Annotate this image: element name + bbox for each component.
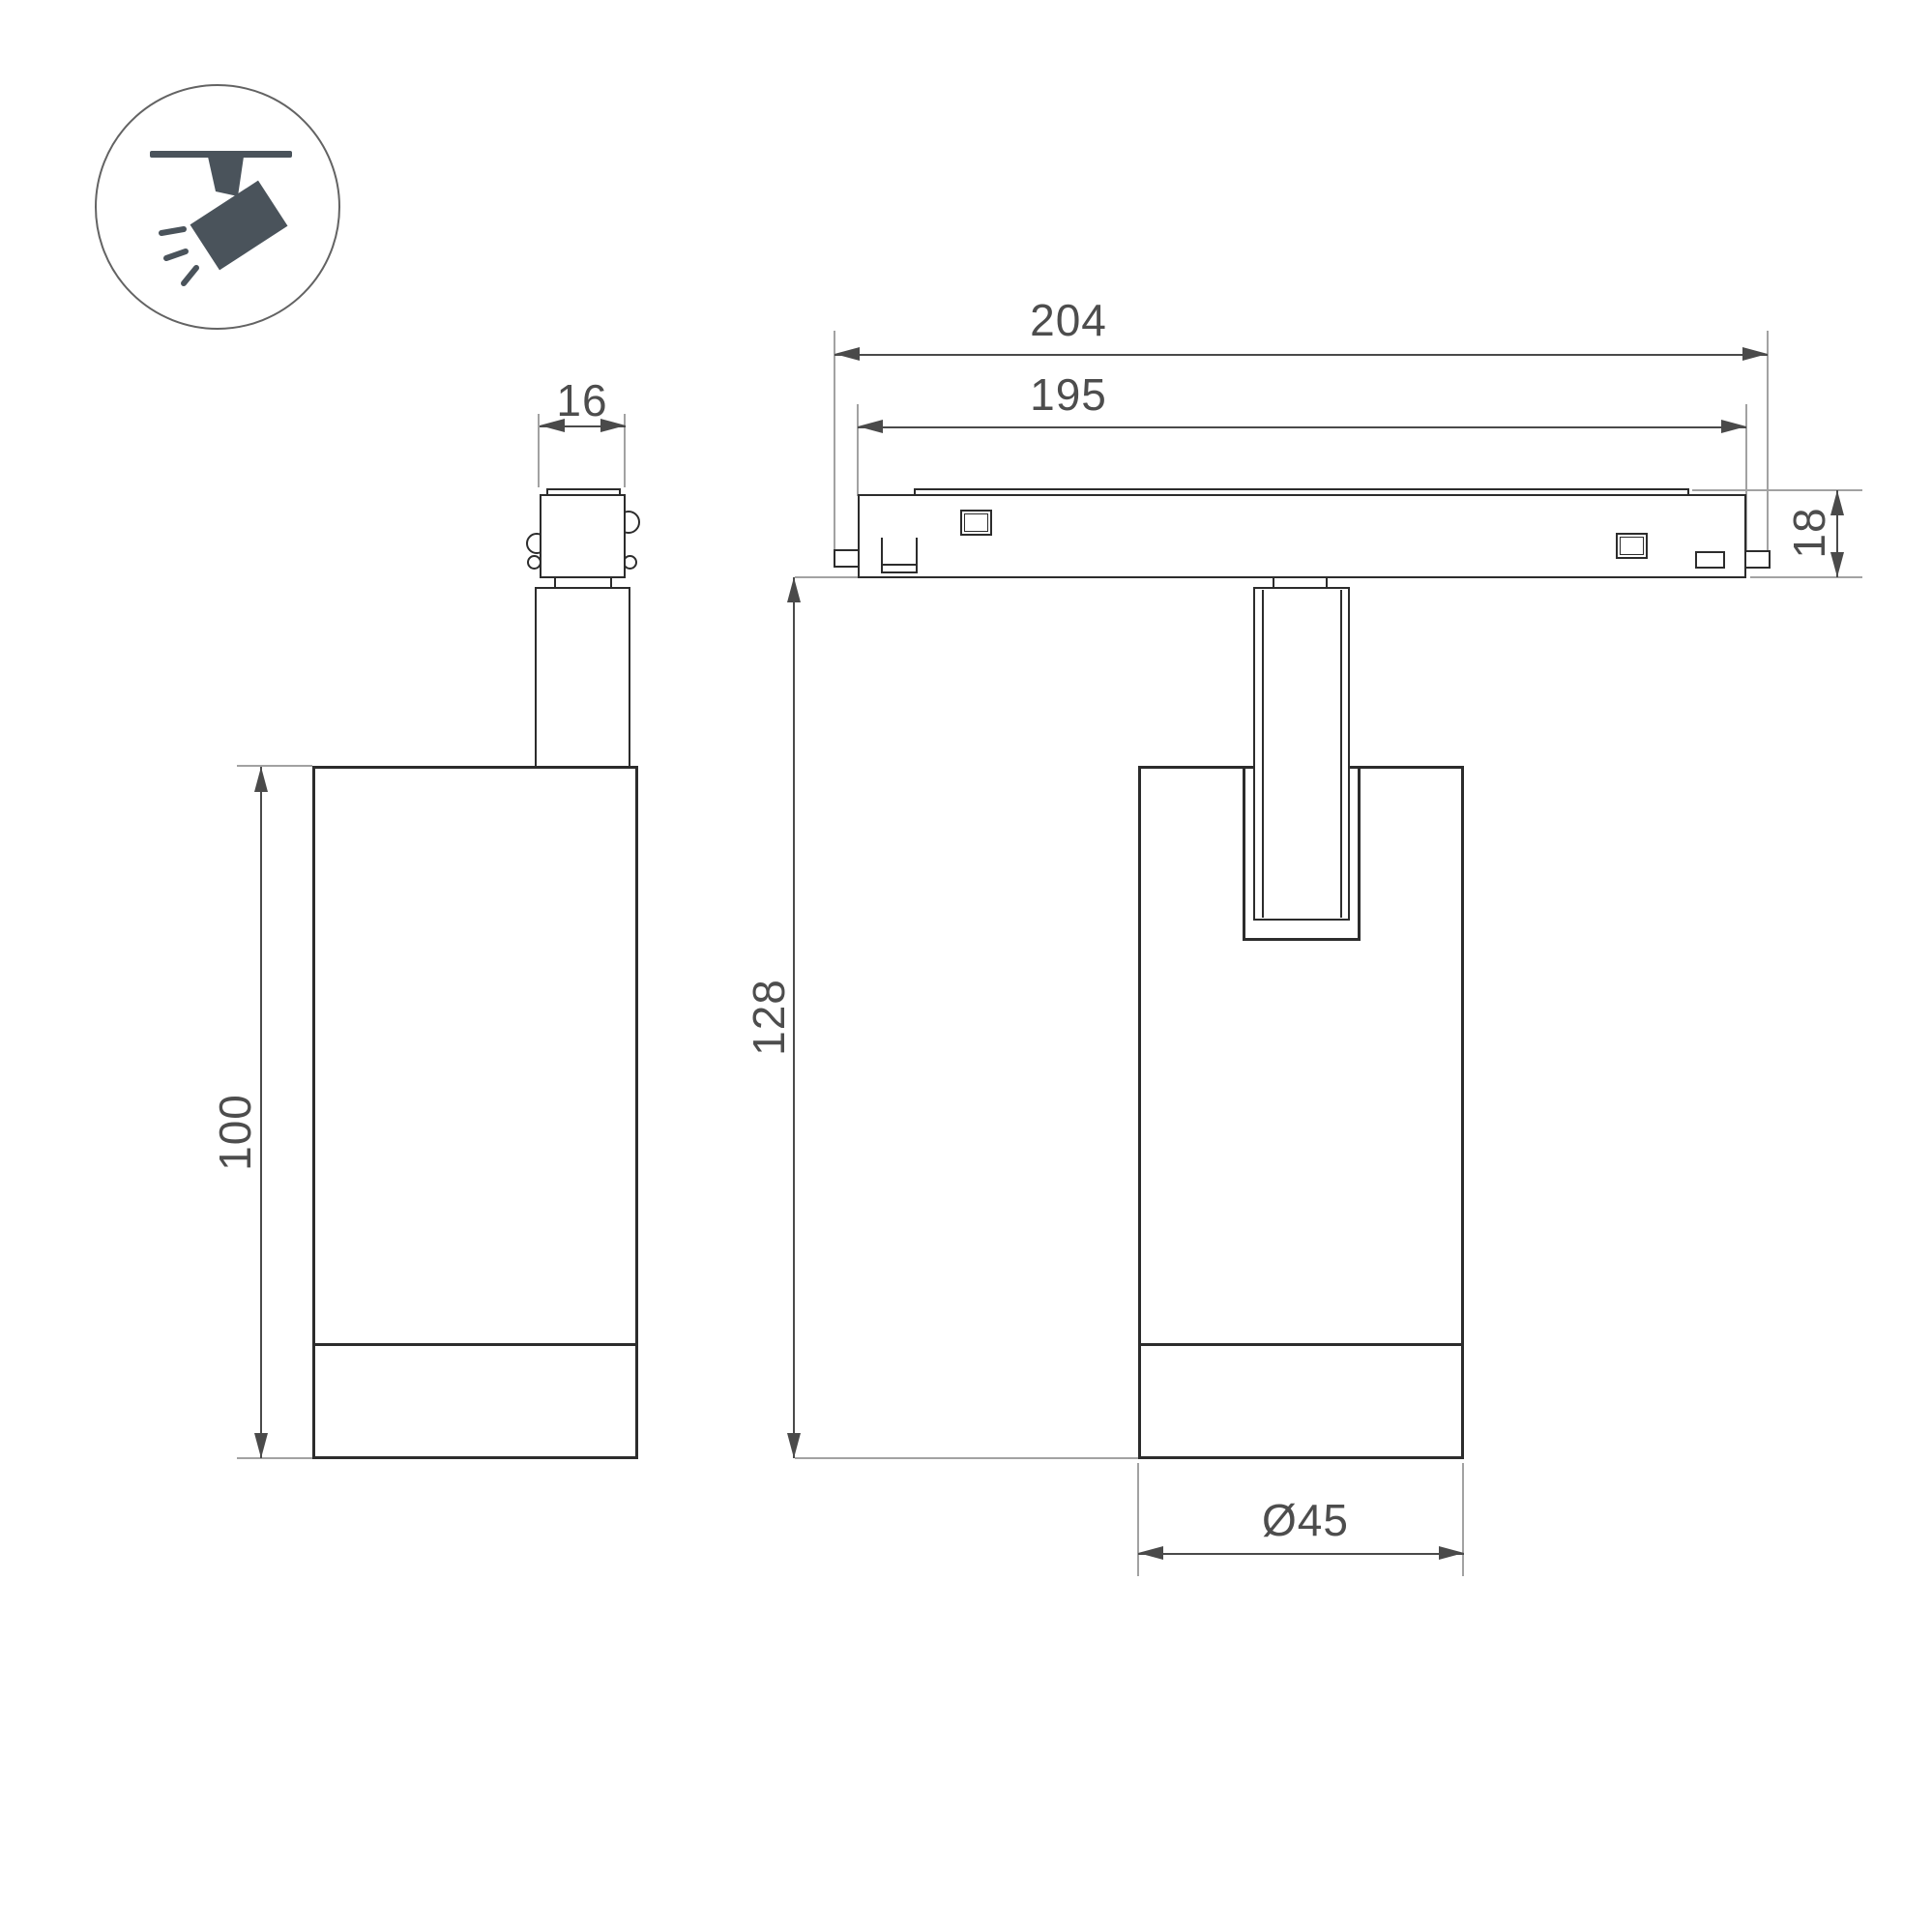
dim-arrow bbox=[834, 347, 860, 361]
stem-inner-edge bbox=[1262, 590, 1264, 918]
yoke-slot-wall bbox=[1358, 768, 1361, 941]
icon-mount-stem bbox=[208, 157, 244, 196]
icon-ceiling-track bbox=[150, 151, 292, 158]
drawing-canvas: 204 195 16 18 128 100 Ø45 bbox=[0, 0, 1932, 1932]
terminal-slot bbox=[1695, 551, 1725, 569]
lens-ring-seam bbox=[314, 1343, 636, 1346]
dim-arrow bbox=[1439, 1546, 1464, 1560]
dim-label-18: 18 bbox=[1787, 475, 1831, 591]
icon-light-ray bbox=[166, 251, 186, 258]
dim-arrow bbox=[858, 420, 883, 433]
contact-block bbox=[1616, 533, 1648, 559]
icon-light-ray bbox=[161, 229, 184, 233]
track-lid bbox=[914, 488, 1689, 496]
ext-line bbox=[237, 765, 312, 767]
lens-ring-seam bbox=[1140, 1343, 1462, 1346]
track-rail-outline bbox=[858, 494, 1746, 578]
dim-line-195 bbox=[858, 426, 1746, 428]
track-end-tab bbox=[834, 549, 860, 568]
latch-bracket-inner bbox=[883, 564, 916, 566]
latch-bracket bbox=[881, 538, 918, 573]
dim-line-45 bbox=[1138, 1553, 1464, 1555]
contact-block-inner bbox=[964, 513, 988, 532]
ext-line bbox=[795, 1457, 1138, 1459]
ext-line bbox=[834, 331, 835, 549]
track-end-tab bbox=[1744, 550, 1771, 569]
dim-label-128: 128 bbox=[746, 940, 791, 1095]
contact-block bbox=[960, 510, 992, 536]
dim-arrow bbox=[787, 577, 801, 602]
ext-line bbox=[857, 404, 859, 496]
ext-line bbox=[237, 1457, 312, 1459]
lamp-body-side bbox=[312, 766, 638, 1459]
yoke-slot-wall bbox=[1243, 768, 1245, 941]
dim-label-195: 195 bbox=[991, 372, 1146, 417]
contact-block-inner bbox=[1620, 537, 1644, 555]
icon-lamp-head bbox=[190, 181, 288, 271]
track-adapter-outline bbox=[540, 494, 626, 578]
dim-arrow bbox=[1721, 420, 1746, 433]
dim-arrow bbox=[254, 767, 268, 792]
dim-line-100 bbox=[260, 767, 262, 1458]
ext-line bbox=[1767, 331, 1769, 551]
dim-line-204 bbox=[834, 354, 1768, 356]
pivot-stem-front bbox=[1253, 587, 1350, 921]
dim-label-16: 16 bbox=[505, 378, 659, 423]
dim-arrow bbox=[1138, 1546, 1163, 1560]
stem-inner-edge bbox=[1340, 590, 1342, 918]
icon-light-ray bbox=[184, 268, 196, 283]
dim-label-diameter-45: Ø45 bbox=[1223, 1498, 1388, 1542]
dim-label-204: 204 bbox=[991, 298, 1146, 342]
dim-arrow bbox=[787, 1433, 801, 1458]
yoke-slot-bottom bbox=[1243, 938, 1360, 941]
dim-label-100: 100 bbox=[213, 1055, 257, 1210]
ext-line bbox=[795, 576, 858, 578]
pivot-stem-side bbox=[535, 587, 630, 768]
dim-arrow bbox=[254, 1433, 268, 1458]
dim-arrow bbox=[1742, 347, 1768, 361]
ceiling-track-spotlight-icon bbox=[94, 83, 341, 331]
